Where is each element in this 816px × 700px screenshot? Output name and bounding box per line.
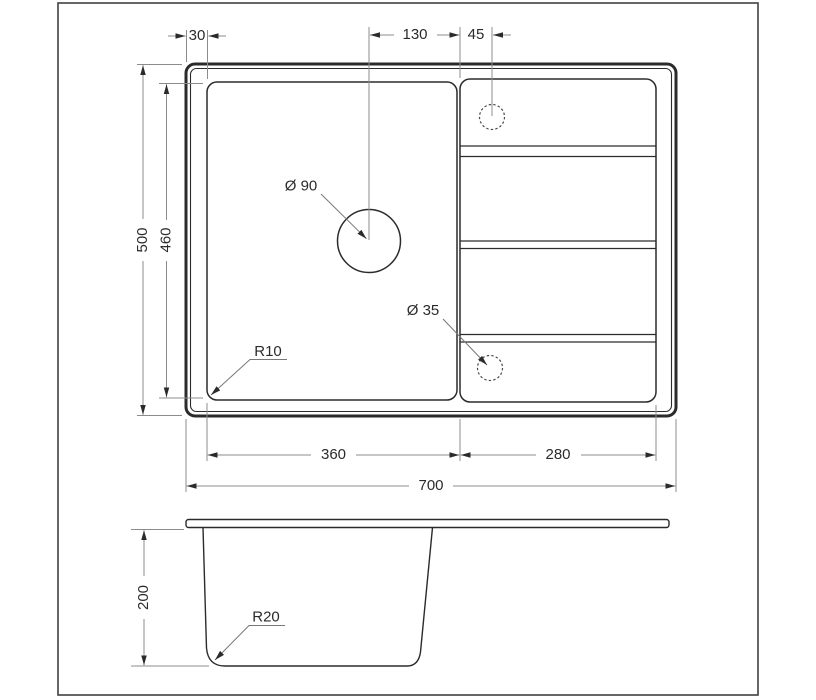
label-corner-radius: R10 bbox=[254, 343, 282, 360]
leader-line bbox=[211, 360, 287, 396]
label-drain-hole: Ø 90 bbox=[285, 178, 318, 195]
sink-rim-inner-edge bbox=[191, 69, 672, 412]
label-bottom-radius: R20 bbox=[252, 609, 280, 626]
dim-30: 30 bbox=[189, 27, 206, 44]
dim-500: 500 bbox=[134, 227, 151, 252]
dim-45: 45 bbox=[468, 26, 485, 43]
bowl-profile bbox=[203, 528, 433, 667]
dim-130: 130 bbox=[402, 26, 427, 43]
sink-technical-drawing: 30 130 45 500 460 360 280 700 200 bbox=[0, 0, 816, 700]
dim-200: 200 bbox=[135, 585, 152, 610]
drawing-canvas: 30 130 45 500 460 360 280 700 200 bbox=[0, 0, 816, 700]
leader-line bbox=[215, 626, 285, 661]
dim-360: 360 bbox=[321, 446, 346, 463]
bowl-outline bbox=[207, 82, 457, 400]
leader-line bbox=[321, 194, 367, 239]
drawing-frame bbox=[58, 3, 758, 695]
dim-280: 280 bbox=[545, 446, 570, 463]
dim-700: 700 bbox=[418, 477, 443, 494]
rim-profile bbox=[186, 520, 669, 528]
dim-460: 460 bbox=[158, 227, 175, 252]
side-view bbox=[186, 520, 669, 667]
label-tap-hole: Ø 35 bbox=[407, 302, 440, 319]
sink-outer-edge bbox=[186, 64, 676, 416]
top-view bbox=[186, 64, 676, 416]
dimensions: 30 130 45 500 460 360 280 700 200 bbox=[131, 26, 676, 666]
